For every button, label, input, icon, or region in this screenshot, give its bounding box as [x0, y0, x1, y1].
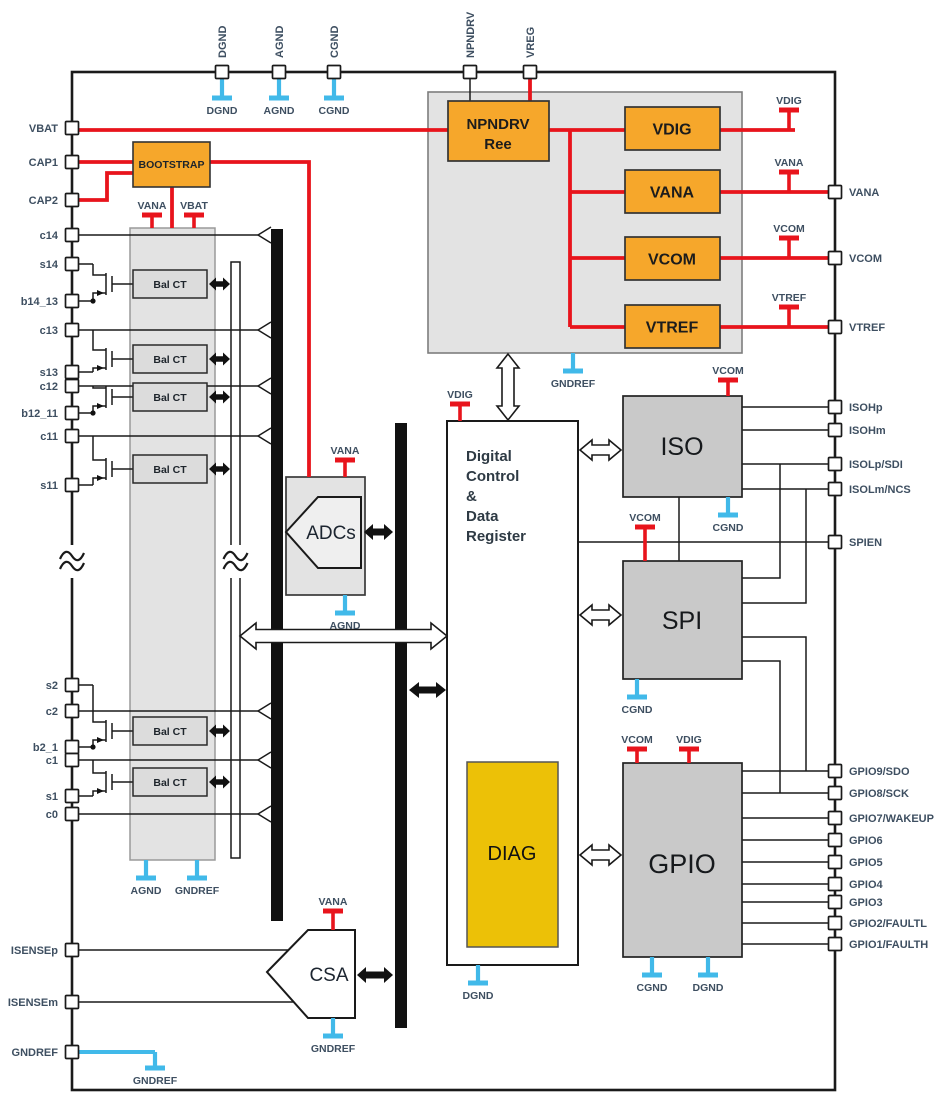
pin-left-label-12: s2 — [46, 680, 58, 692]
pin-left-label-18: ISENSEp — [11, 945, 58, 957]
pin-right-8 — [829, 765, 842, 778]
pin-left-13 — [66, 705, 79, 718]
pin-left-label-3: c14 — [40, 230, 59, 242]
pin-top-0 — [216, 66, 229, 79]
pin-right-16 — [829, 938, 842, 951]
pin-left-9 — [66, 407, 79, 420]
supply-label-2: VANA — [331, 445, 360, 457]
digital-label-3: & — [466, 488, 477, 505]
pin-left-label-13: c2 — [46, 706, 58, 718]
balance-pin-stubs — [78, 264, 93, 796]
bal-ct-label-1: Bal CT — [153, 354, 187, 366]
bal-ct-label-2: Bal CT — [153, 392, 187, 404]
pin-left-label-19: ISENSEm — [8, 997, 58, 1009]
pin-top-label-3: NPNDRV — [465, 11, 477, 58]
gpio-label: GPIO — [648, 849, 716, 879]
pin-left-19 — [66, 996, 79, 1009]
pin-right-label-5: ISOLp/SDI — [849, 459, 903, 471]
supply-label-10: VCOM — [621, 734, 653, 746]
pin-left-8 — [66, 380, 79, 393]
pin-right-label-14: GPIO3 — [849, 897, 883, 909]
pin-left-label-5: b14_13 — [21, 296, 58, 308]
pin-right-label-0: VANA — [849, 187, 879, 199]
ic-block-diagram: BOOTSTRAP NPNDRV Ree VDIG VANA VCOM VTRE… — [0, 0, 943, 1100]
vdig-regulator-label: VDIG — [652, 122, 691, 139]
csa-label: CSA — [309, 965, 348, 986]
cap2-wire — [78, 173, 133, 200]
pin-top-label-2: CGND — [329, 26, 341, 58]
bidirectional-arrow-icon — [364, 524, 393, 540]
pin-right-12 — [829, 856, 842, 869]
data-bus-arrow-icon — [580, 440, 621, 460]
pin-left-label-7: s13 — [40, 367, 58, 379]
ground-label-13: GNDREF — [133, 1075, 178, 1087]
cell-interface-panel — [130, 228, 215, 860]
pin-right-label-4: ISOHm — [849, 425, 886, 437]
block-diagram-canvas: BOOTSTRAP NPNDRV Ree VDIG VANA VCOM VTRE… — [0, 0, 943, 1100]
mosfet-arrow-icon — [97, 788, 104, 794]
pin-left-2 — [66, 194, 79, 207]
supply-label-5: VCOM — [773, 223, 805, 235]
mosfet-arrow-icon — [97, 290, 104, 296]
bootstrap-label: BOOTSTRAP — [139, 159, 205, 171]
npndrv-label-1: NPNDRV — [466, 116, 529, 133]
bidirectional-arrow-icon — [357, 967, 393, 983]
pin-right-label-15: GPIO2/FAULTL — [849, 918, 927, 930]
digital-label-4: Data — [466, 508, 499, 525]
bus-merge-chevron-icon — [258, 322, 271, 338]
ground-label-4: AGND — [330, 620, 361, 632]
vana-regulator-label: VANA — [650, 185, 695, 202]
spi-label: SPI — [662, 607, 702, 635]
isense-lines — [78, 950, 293, 1002]
pin-left-label-2: CAP2 — [29, 195, 58, 207]
iso-label: ISO — [660, 433, 703, 461]
pin-right-10 — [829, 812, 842, 825]
pin-right-6 — [829, 483, 842, 496]
break-mask — [223, 545, 249, 578]
pin-left-label-6: c13 — [40, 325, 58, 337]
pin-left-label-4: s14 — [40, 259, 59, 271]
ground-label-10: CGND — [637, 982, 668, 994]
pin-left-14 — [66, 741, 79, 754]
junction-dot — [90, 744, 95, 749]
pin-left-label-17: c0 — [46, 809, 58, 821]
mosfet-arrow-icon — [97, 475, 104, 481]
bal-ct-label-4: Bal CT — [153, 726, 187, 738]
pin-left-label-20: GNDREF — [12, 1047, 59, 1059]
pin-right-label-6: ISOLm/NCS — [849, 484, 911, 496]
pin-right-label-13: GPIO4 — [849, 879, 884, 891]
pin-right-15 — [829, 917, 842, 930]
pin-right-label-11: GPIO6 — [849, 835, 883, 847]
pin-top-label-4: VREG — [525, 27, 537, 58]
pin-left-16 — [66, 790, 79, 803]
data-bus-arrow-icon — [580, 845, 621, 865]
pin-left-4 — [66, 258, 79, 271]
mosfet-icon — [93, 386, 133, 413]
pin-right-1 — [829, 252, 842, 265]
pin-left-label-16: s1 — [46, 791, 58, 803]
mosfet-arrow-icon — [97, 737, 104, 743]
pin-left-3 — [66, 229, 79, 242]
bus-merge-chevron-icon — [258, 227, 271, 243]
pin-left-label-1: CAP1 — [29, 157, 58, 169]
pin-top-3 — [464, 66, 477, 79]
pin-left-7 — [66, 366, 79, 379]
ground-label-1: AGND — [264, 105, 295, 117]
pin-left-0 — [66, 122, 79, 135]
pin-left-11 — [66, 479, 79, 492]
ground-label-2: CGND — [319, 105, 350, 117]
supply-label-11: VDIG — [676, 734, 702, 746]
pin-left-label-14: b2_1 — [33, 742, 58, 754]
mosfet-icon — [93, 264, 133, 301]
ground-label-7: DGND — [463, 990, 494, 1002]
pin-left-label-10: c11 — [40, 431, 58, 443]
supply-label-4: VANA — [775, 157, 804, 169]
mosfet-icon — [93, 685, 133, 747]
pin-left-label-8: c12 — [40, 381, 58, 393]
balance-fets — [90, 264, 133, 796]
digital-label-5: Register — [466, 528, 526, 545]
pin-right-label-3: ISOHp — [849, 402, 883, 414]
bus-merge-chevrons — [258, 227, 271, 822]
pin-left-6 — [66, 324, 79, 337]
pin-right-14 — [829, 896, 842, 909]
vtref-regulator-label: VTREF — [646, 320, 699, 337]
digital-label-1: Digital — [466, 448, 512, 465]
bal-ct-label-0: Bal CT — [153, 279, 187, 291]
bus-merge-chevron-icon — [258, 806, 271, 822]
mosfet-icon — [93, 330, 133, 372]
bus-merge-chevron-icon — [258, 378, 271, 394]
ground-label-0: DGND — [207, 105, 238, 117]
pin-right-label-10: GPIO7/WAKEUP — [849, 813, 934, 825]
junction-dot — [90, 410, 95, 415]
bal-ct-label-3: Bal CT — [153, 464, 187, 476]
mosfet-arrow-icon — [97, 403, 104, 409]
pin-right-0 — [829, 186, 842, 199]
spi-mux-links — [742, 464, 806, 793]
pin-top-1 — [273, 66, 286, 79]
pin-right-9 — [829, 787, 842, 800]
pin-right-11 — [829, 834, 842, 847]
data-bus-arrow-icon — [580, 605, 621, 625]
pin-right-2 — [829, 321, 842, 334]
pin-right-label-9: GPIO8/SCK — [849, 788, 909, 800]
pin-right-4 — [829, 424, 842, 437]
pin-left-label-0: VBAT — [29, 123, 58, 135]
ground-label-9: CGND — [622, 704, 653, 716]
pin-left-1 — [66, 156, 79, 169]
pin-right-5 — [829, 458, 842, 471]
pin-left-15 — [66, 754, 79, 767]
pin-right-label-12: GPIO5 — [849, 857, 883, 869]
ground-label-11: DGND — [693, 982, 724, 994]
supply-label-1: VBAT — [180, 200, 208, 212]
pin-top-2 — [328, 66, 341, 79]
supply-label-8: VCOM — [712, 365, 744, 377]
buses — [231, 229, 407, 1028]
pin-right-7 — [829, 536, 842, 549]
pin-top-4 — [524, 66, 537, 79]
break-mask — [59, 545, 85, 578]
pin-right-label-8: GPIO9/SDO — [849, 766, 910, 778]
bus-merge-chevron-icon — [258, 752, 271, 768]
data-bus-arrow-icon — [497, 354, 519, 420]
bal-ct-label-5: Bal CT — [153, 777, 187, 789]
supply-label-0: VANA — [138, 200, 167, 212]
supply-label-12: VANA — [319, 896, 348, 908]
pin-right-label-2: VTREF — [849, 322, 885, 334]
npndrv-label-2: Ree — [484, 136, 512, 153]
supply-label-9: VCOM — [629, 512, 661, 524]
pin-left-18 — [66, 944, 79, 957]
bus-merge-chevron-icon — [258, 428, 271, 444]
pin-left-12 — [66, 679, 79, 692]
adcs-label: ADCs — [306, 523, 356, 544]
pin-left-10 — [66, 430, 79, 443]
ground-label-5: AGND — [131, 885, 162, 897]
supply-label-6: VTREF — [772, 292, 807, 304]
pin-right-3 — [829, 401, 842, 414]
pin-left-17 — [66, 808, 79, 821]
pin-right-label-7: SPIEN — [849, 537, 882, 549]
gpio-lines — [742, 771, 829, 944]
ground-label-3: GNDREF — [551, 378, 596, 390]
pin-right-label-1: VCOM — [849, 253, 882, 265]
pin-left-5 — [66, 295, 79, 308]
supply-label-7: VDIG — [447, 389, 473, 401]
mosfet-arrow-icon — [97, 365, 104, 371]
pin-left-label-11: s11 — [40, 480, 58, 492]
pin-top-label-1: AGND — [274, 26, 286, 58]
bidirectional-arrow-icon — [409, 682, 446, 698]
thick-bus-right — [395, 423, 407, 1028]
junction-dot — [90, 298, 95, 303]
pin-left-20 — [66, 1046, 79, 1059]
ground-label-12: GNDREF — [311, 1043, 356, 1055]
bootstrap-out-wire — [210, 162, 309, 477]
pin-top-label-0: DGND — [217, 26, 229, 58]
diag-label: DIAG — [488, 843, 537, 865]
vcom-regulator-label: VCOM — [648, 252, 696, 269]
pin-left-label-15: c1 — [46, 755, 58, 767]
iso-lines — [742, 407, 829, 489]
thick-bus-left — [271, 229, 283, 921]
bus-merge-chevron-icon — [258, 703, 271, 719]
ground-label-8: CGND — [713, 522, 744, 534]
supply-label-3: VDIG — [776, 95, 802, 107]
pin-left-label-9: b12_11 — [21, 408, 58, 420]
ground-label-6: GNDREF — [175, 885, 220, 897]
pin-right-label-16: GPIO1/FAULTH — [849, 939, 928, 951]
digital-label-2: Control — [466, 468, 519, 485]
pin-right-13 — [829, 878, 842, 891]
